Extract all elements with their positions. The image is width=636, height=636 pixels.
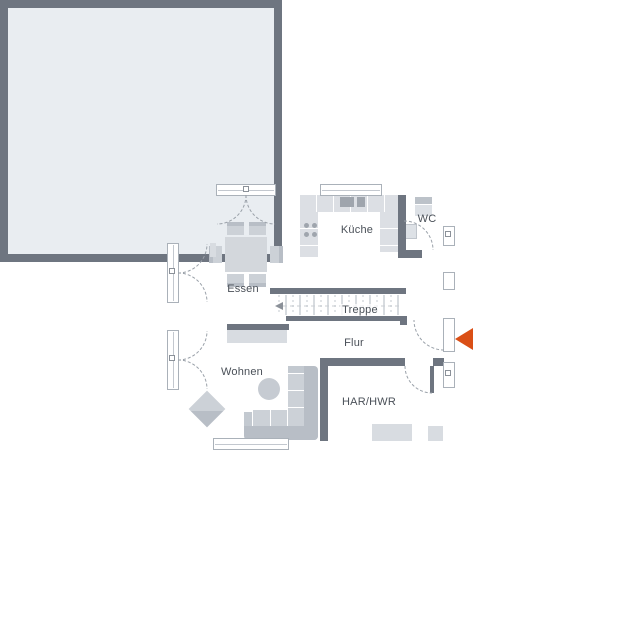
door-swing-arc — [178, 273, 207, 302]
door-swing-arc — [217, 195, 246, 224]
entrance-arrow-icon — [455, 328, 473, 350]
door-swing-arc — [178, 360, 207, 389]
room-label-wc: WC — [418, 213, 437, 225]
room-label-essen: Essen — [227, 283, 259, 295]
door-swing-arc — [246, 195, 275, 224]
room-label-treppe: Treppe — [340, 304, 380, 316]
floor-plan: Essen Küche WC Treppe Flur Wohnen HAR/HW… — [0, 0, 636, 636]
room-label-har-hwr: HAR/HWR — [342, 396, 396, 408]
wc-door-swing-arc — [404, 221, 433, 250]
entrance-door-swing-arc — [414, 320, 444, 350]
door-swing-arc — [178, 331, 207, 360]
room-label-wohnen: Wohnen — [221, 366, 263, 378]
plan-symbol-overlay — [0, 0, 636, 636]
room-label-kueche: Küche — [341, 224, 373, 236]
room-label-flur: Flur — [344, 337, 364, 349]
door-swing-arc — [178, 244, 207, 273]
har-door-swing-arc — [405, 366, 432, 393]
stair-direction-arrow-icon — [275, 302, 283, 310]
